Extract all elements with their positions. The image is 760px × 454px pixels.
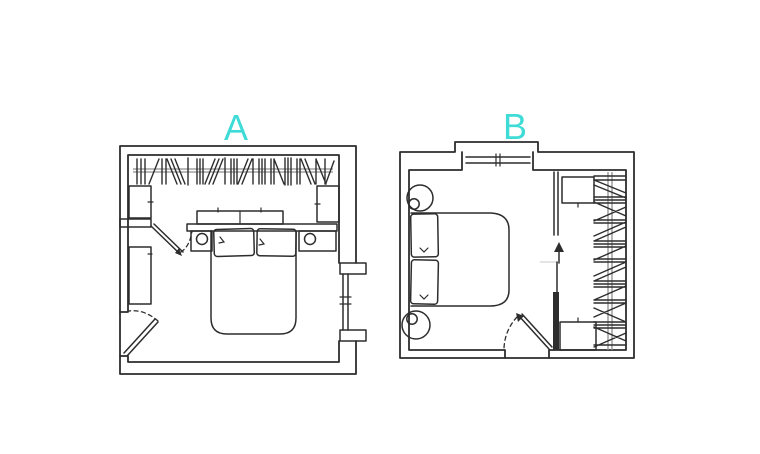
plan-b-label: B <box>503 106 527 147</box>
headboard-wall <box>187 224 337 231</box>
entry-door-b <box>504 313 552 349</box>
pillow-bottom <box>411 260 439 305</box>
wardrobe-left <box>129 247 152 304</box>
closet-door <box>151 224 192 256</box>
cabinet-top-right <box>315 186 339 222</box>
floor-plan-a: A <box>120 107 366 374</box>
floor-plans-canvas: A <box>0 0 760 454</box>
entry-arrow-icon <box>554 242 564 263</box>
dresser-bottom-right <box>560 318 596 350</box>
clothes-rail-icon <box>133 169 333 172</box>
window-right <box>340 263 366 341</box>
window-top <box>466 154 530 166</box>
lamp-icon <box>409 199 419 209</box>
sliding-panel <box>553 292 559 350</box>
pillow-right <box>257 229 296 257</box>
headboard-shelf <box>197 208 283 224</box>
closet-partition-stub <box>120 219 151 227</box>
floor-plan-b: B <box>400 106 634 358</box>
floor-plans-image: A <box>0 0 760 454</box>
door-swing-arc <box>504 317 517 348</box>
pillow-top <box>411 214 439 257</box>
dresser-top-right <box>562 177 594 207</box>
nightstand-left <box>191 231 212 251</box>
closet-partition-wall <box>554 172 558 235</box>
hanging-clothes-hatch-icon <box>594 176 626 347</box>
cabinet-top-left <box>129 186 153 218</box>
plan-a-label: A <box>224 107 248 148</box>
clothes-rail-icon <box>608 172 612 350</box>
door-leaf <box>519 314 552 349</box>
nightstand-round-top <box>407 185 433 211</box>
door-leaf <box>124 319 158 356</box>
entry-door-a <box>124 311 158 356</box>
lamp-icon <box>305 234 316 245</box>
plan-a-inner-wall <box>120 155 339 362</box>
nightstand-round-bottom <box>402 311 430 339</box>
pillow-left <box>214 228 255 256</box>
nightstand-right <box>299 231 336 251</box>
plan-a-outer-wall <box>120 146 356 374</box>
lamp-icon <box>197 234 208 245</box>
